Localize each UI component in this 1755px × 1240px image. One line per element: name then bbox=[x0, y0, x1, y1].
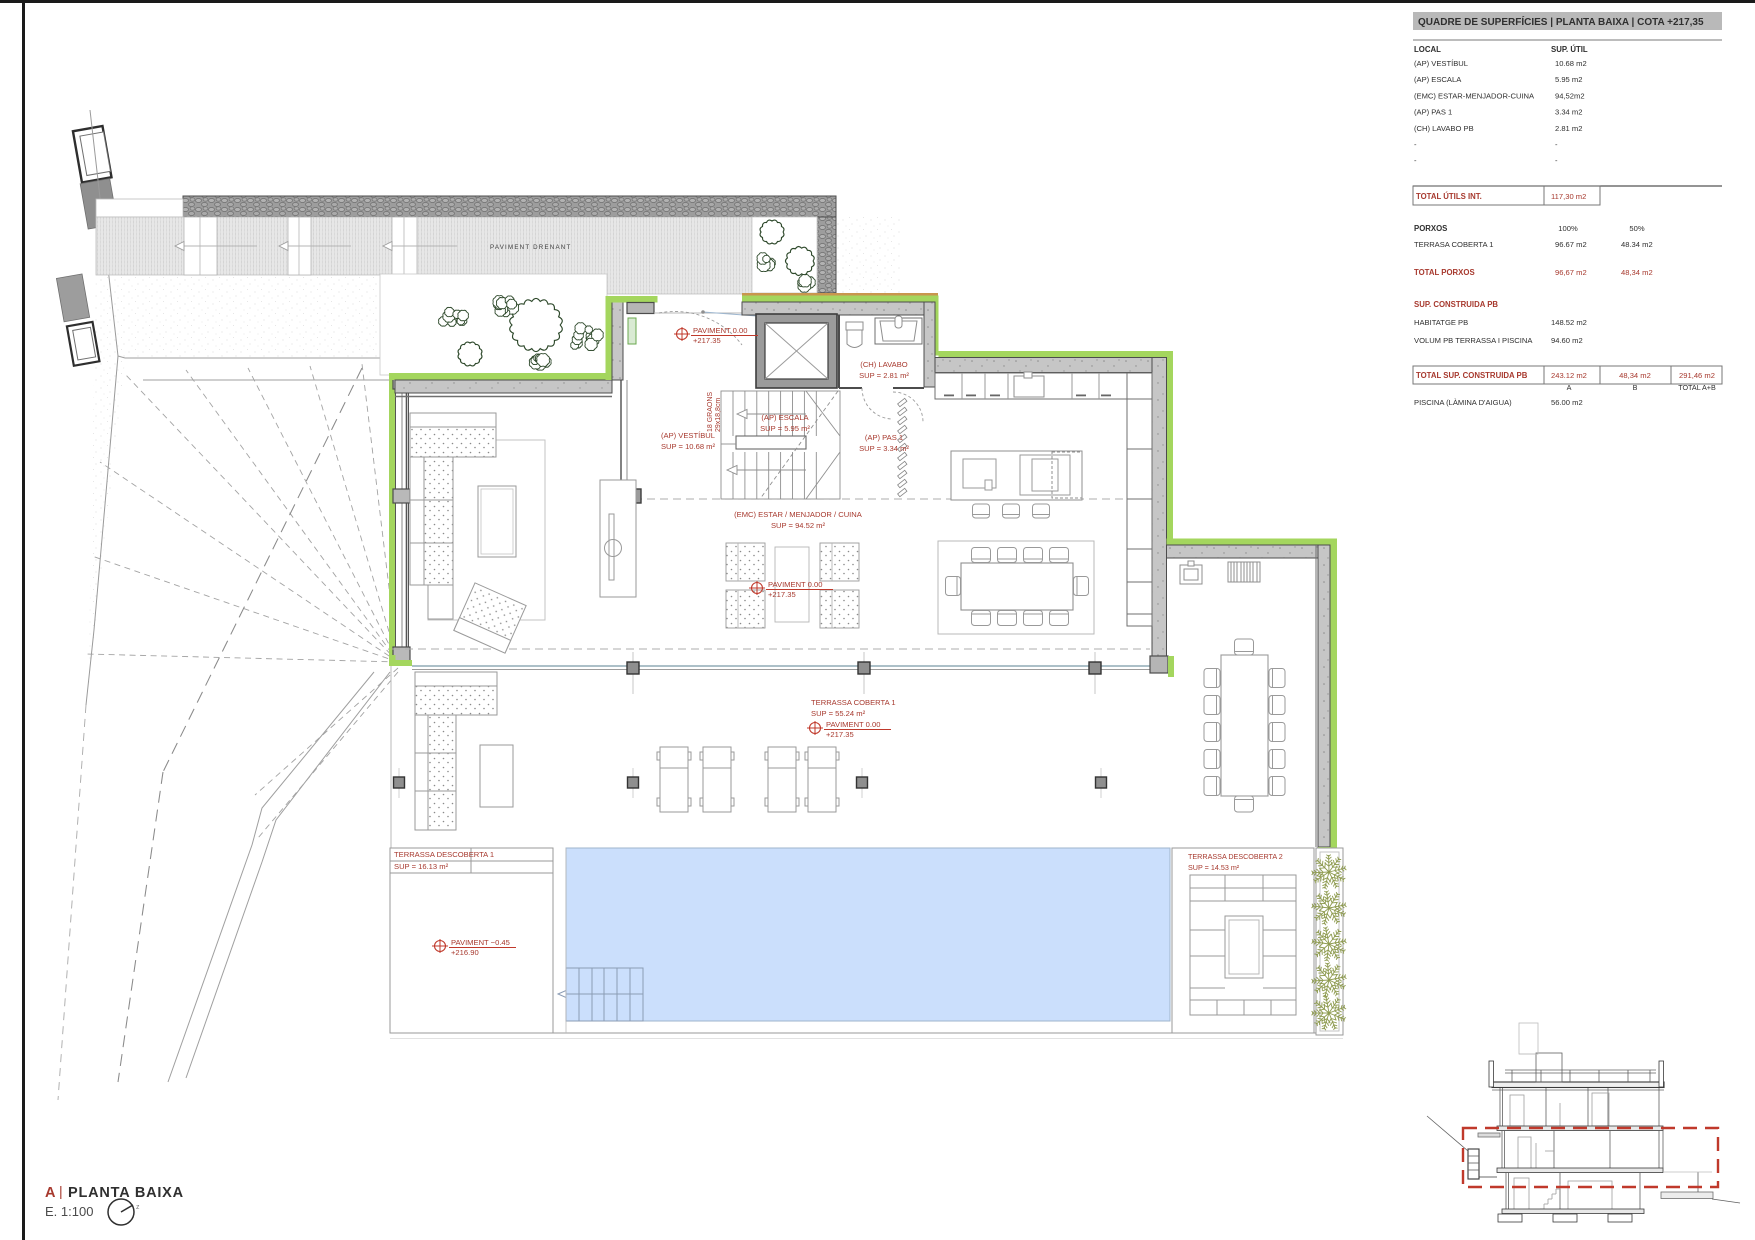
svg-text:TOTAL SUP. CONSTRUIDA PB: TOTAL SUP. CONSTRUIDA PB bbox=[1416, 371, 1528, 380]
svg-text:z: z bbox=[136, 1204, 140, 1211]
svg-text:(AP) ESCALA: (AP) ESCALA bbox=[761, 413, 809, 422]
svg-text:(EMC) ESTAR / MENJADOR /: (EMC) ESTAR / MENJADOR / CUINA bbox=[734, 510, 863, 519]
svg-text:SUP. ÚTIL: SUP. ÚTIL bbox=[1551, 45, 1588, 54]
svg-text:(CH) LAVABO PB: (CH) LAVABO PB bbox=[1414, 124, 1474, 133]
svg-text:+217.35: +217.35 bbox=[768, 590, 796, 599]
svg-text:100%: 100% bbox=[1558, 224, 1578, 233]
svg-text:+216.90: +216.90 bbox=[451, 948, 479, 957]
svg-text:29x18,8cm: 29x18,8cm bbox=[715, 398, 722, 432]
svg-text:148.52 m2: 148.52 m2 bbox=[1551, 318, 1587, 327]
svg-text:56.00 m2: 56.00 m2 bbox=[1551, 398, 1583, 407]
svg-text:+217.35: +217.35 bbox=[693, 336, 721, 345]
svg-text:3.34 m2: 3.34 m2 bbox=[1555, 108, 1582, 117]
svg-text:2.81 m2: 2.81 m2 bbox=[1555, 124, 1582, 133]
svg-text:94.60 m2: 94.60 m2 bbox=[1551, 336, 1583, 345]
svg-text:SUP. CONSTRUIDA PB: SUP. CONSTRUIDA PB bbox=[1414, 300, 1498, 309]
svg-text:LOCAL: LOCAL bbox=[1414, 45, 1441, 54]
svg-text:(CH) LAVABO: (CH) LAVABO bbox=[860, 360, 907, 369]
svg-text:(AP) PAS 1: (AP) PAS 1 bbox=[865, 433, 903, 442]
svg-text:243.12 m2: 243.12 m2 bbox=[1551, 371, 1587, 380]
svg-text:48,34 m2: 48,34 m2 bbox=[1621, 268, 1653, 277]
svg-text:PAVIMENT 0.00: PAVIMENT 0.00 bbox=[768, 580, 822, 589]
svg-text:96.67 m2: 96.67 m2 bbox=[1555, 240, 1587, 249]
svg-text:SUP = 2.81 m²: SUP = 2.81 m² bbox=[859, 371, 909, 380]
svg-text:5.95 m2: 5.95 m2 bbox=[1555, 75, 1582, 84]
svg-text:50%: 50% bbox=[1629, 224, 1644, 233]
svg-text:SUP = 14.53 m²: SUP = 14.53 m² bbox=[1188, 863, 1240, 872]
svg-text:TERRASSA DESCOBERTA 1: TERRASSA DESCOBERTA 1 bbox=[394, 850, 494, 859]
svg-text:PORXOS: PORXOS bbox=[1414, 224, 1447, 233]
svg-text:A: A bbox=[1567, 383, 1572, 392]
svg-text:96,67 m2: 96,67 m2 bbox=[1555, 268, 1587, 277]
svg-text:TOTAL A+B: TOTAL A+B bbox=[1678, 383, 1716, 392]
svg-text:B: B bbox=[1633, 383, 1638, 392]
svg-text:TERRASA COBERTA 1: TERRASA COBERTA 1 bbox=[1414, 240, 1493, 249]
svg-text:(EMC) ESTAR-MENJADOR-CUINA: (EMC) ESTAR-MENJADOR-CUINA bbox=[1414, 91, 1535, 100]
svg-text:SUP = 55.24 m²: SUP = 55.24 m² bbox=[811, 709, 866, 718]
svg-text:SUP = 16.13 m²: SUP = 16.13 m² bbox=[394, 862, 449, 871]
svg-text:VOLUM PB TERRASSA I PISCINA: VOLUM PB TERRASSA I PISCINA bbox=[1414, 336, 1533, 345]
svg-text:PLANTA BAIXA: PLANTA BAIXA bbox=[68, 1185, 184, 1201]
svg-text:PISCINA (LÀMINA D'AIGUA): PISCINA (LÀMINA D'AIGUA) bbox=[1414, 398, 1512, 407]
svg-text:291,46 m2: 291,46 m2 bbox=[1679, 371, 1715, 380]
svg-text:48,34 m2: 48,34 m2 bbox=[1619, 371, 1651, 380]
svg-text:10.68 m2: 10.68 m2 bbox=[1555, 59, 1587, 68]
svg-text:PAVIMENT DRENANT: PAVIMENT DRENANT bbox=[490, 244, 571, 251]
svg-text:PAVIMENT 0.00: PAVIMENT 0.00 bbox=[826, 720, 880, 729]
svg-text:SUP = 10.68 m²: SUP = 10.68 m² bbox=[661, 442, 716, 451]
svg-text:18 GRAONS: 18 GRAONS bbox=[707, 392, 714, 432]
svg-text:+217.35: +217.35 bbox=[826, 730, 854, 739]
svg-text:SUP = 5.95 m²: SUP = 5.95 m² bbox=[760, 424, 810, 433]
svg-text:TERRASSA COBERTA 1: TERRASSA COBERTA 1 bbox=[811, 698, 896, 707]
svg-text:|: | bbox=[59, 1183, 63, 1199]
svg-text:TOTAL ÚTILS INT.: TOTAL ÚTILS INT. bbox=[1416, 192, 1482, 201]
svg-text:PAVIMENT 0.00: PAVIMENT 0.00 bbox=[693, 326, 747, 335]
svg-text:(AP) PAS 1: (AP) PAS 1 bbox=[1414, 108, 1452, 117]
svg-text:(AP) VESTÍBUL: (AP) VESTÍBUL bbox=[661, 431, 715, 440]
svg-text:HABITATGE PB: HABITATGE PB bbox=[1414, 318, 1468, 327]
svg-text:QUADRE DE SUPERFÍCIES | PLANTA: QUADRE DE SUPERFÍCIES | PLANTA BAIXA | C… bbox=[1418, 15, 1704, 28]
svg-text:(AP) VESTÍBUL: (AP) VESTÍBUL bbox=[1414, 59, 1468, 68]
svg-text:48.34 m2: 48.34 m2 bbox=[1621, 240, 1653, 249]
svg-text:94,52m2: 94,52m2 bbox=[1555, 91, 1585, 100]
svg-text:TOTAL PORXOS: TOTAL PORXOS bbox=[1414, 268, 1475, 277]
svg-text:A: A bbox=[45, 1185, 56, 1201]
svg-text:(AP) ESCALA: (AP) ESCALA bbox=[1414, 75, 1462, 84]
svg-text:SUP = 94.52 m²: SUP = 94.52 m² bbox=[771, 521, 826, 530]
svg-text:TERRASSA DESCOBERTA 2: TERRASSA DESCOBERTA 2 bbox=[1188, 852, 1283, 861]
svg-text:E. 1:100: E. 1:100 bbox=[45, 1204, 93, 1219]
svg-text:PAVIMENT −0.45: PAVIMENT −0.45 bbox=[451, 938, 510, 947]
svg-text:117,30 m2: 117,30 m2 bbox=[1551, 192, 1586, 201]
svg-text:SUP = 3.34 m²: SUP = 3.34 m² bbox=[859, 444, 909, 453]
